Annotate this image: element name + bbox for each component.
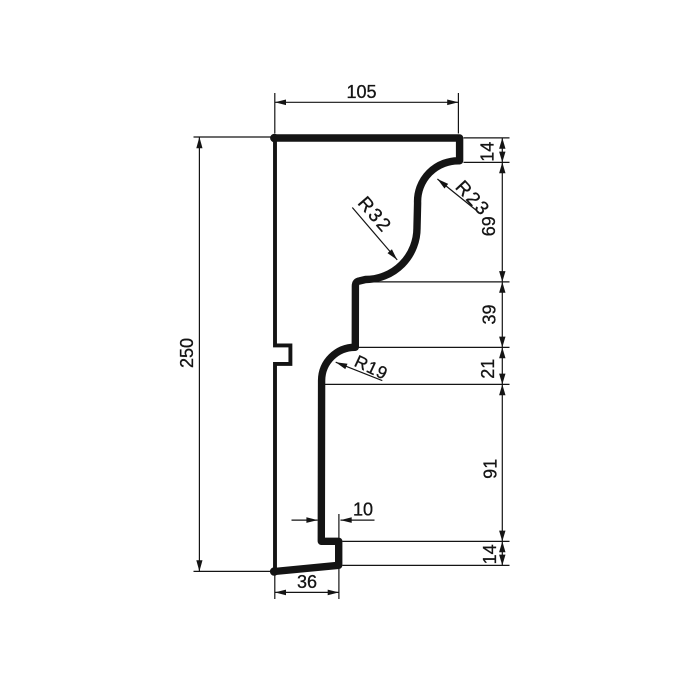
svg-text:14: 14 xyxy=(478,142,498,162)
svg-text:21: 21 xyxy=(478,359,498,379)
svg-text:39: 39 xyxy=(479,304,499,324)
svg-text:105: 105 xyxy=(346,82,376,102)
svg-text:69: 69 xyxy=(479,216,499,236)
svg-text:250: 250 xyxy=(177,338,197,368)
svg-text:14: 14 xyxy=(480,544,500,564)
svg-text:36: 36 xyxy=(297,572,317,592)
svg-text:91: 91 xyxy=(481,459,501,479)
svg-text:10: 10 xyxy=(353,500,373,520)
